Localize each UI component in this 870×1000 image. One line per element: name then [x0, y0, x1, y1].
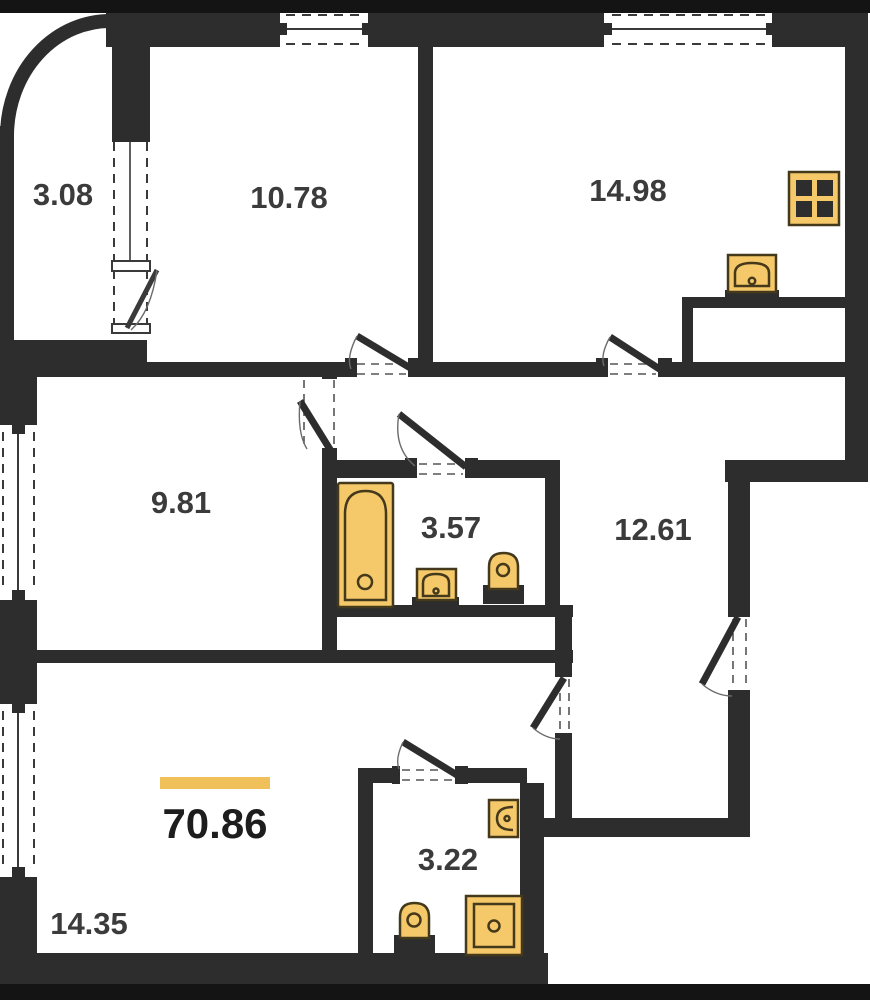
wall [672, 362, 868, 377]
door-post [465, 458, 478, 478]
door-post [322, 362, 337, 379]
door-post [596, 358, 608, 377]
sink-icon [412, 569, 459, 613]
bottom-frame-bar [0, 984, 870, 1000]
sink-icon [489, 800, 518, 837]
wall [322, 462, 337, 658]
room-area-label-bedroom-left: 9.81 [151, 485, 211, 520]
wall [358, 768, 373, 958]
door-post [728, 605, 750, 617]
wall [543, 818, 750, 837]
wall [337, 460, 407, 478]
bathtub-icon [338, 483, 393, 607]
total-area-label: 70.86 [162, 800, 267, 847]
wall [147, 362, 347, 377]
door-post [555, 733, 572, 743]
wall [468, 768, 527, 783]
wall [725, 460, 868, 482]
room-area-label-hallway: 12.61 [614, 512, 692, 547]
room-area-label-bedroom-top: 10.78 [250, 180, 328, 215]
niche-wall [682, 297, 693, 373]
room-area-label-kitchen: 14.98 [589, 173, 667, 208]
wall [112, 44, 150, 142]
wall [422, 362, 598, 377]
wall [845, 13, 868, 460]
wall [0, 953, 548, 984]
wall [728, 482, 750, 607]
wall [0, 126, 14, 346]
wall [545, 460, 560, 610]
wall [555, 743, 572, 820]
sink-icon [725, 255, 779, 301]
door-post [405, 458, 417, 478]
shower-icon [466, 896, 522, 955]
wall [520, 783, 544, 983]
top-frame-bar [0, 0, 870, 13]
stove-icon [789, 172, 839, 225]
floor-plan-page: 3.08 10.78 14.98 9.81 3.57 12.61 3.22 14… [0, 0, 870, 1000]
room-area-label-wc: 3.22 [418, 842, 478, 877]
wall [0, 650, 573, 663]
toilet-icon [394, 903, 435, 955]
wall [0, 340, 147, 377]
room-area-label-bathroom: 3.57 [421, 510, 481, 545]
room-area-label-living-room: 14.35 [50, 906, 128, 941]
room-area-label-balcony: 3.08 [33, 177, 93, 212]
door-post [555, 664, 572, 677]
total-area-accent-bar [160, 777, 270, 789]
wall [368, 13, 604, 47]
wall [418, 47, 433, 362]
wall [728, 702, 750, 837]
wall [106, 13, 280, 47]
toilet-icon [483, 553, 524, 604]
wall [0, 377, 37, 425]
floor-plan-drawing: 3.08 10.78 14.98 9.81 3.57 12.61 3.22 14… [0, 0, 870, 1000]
